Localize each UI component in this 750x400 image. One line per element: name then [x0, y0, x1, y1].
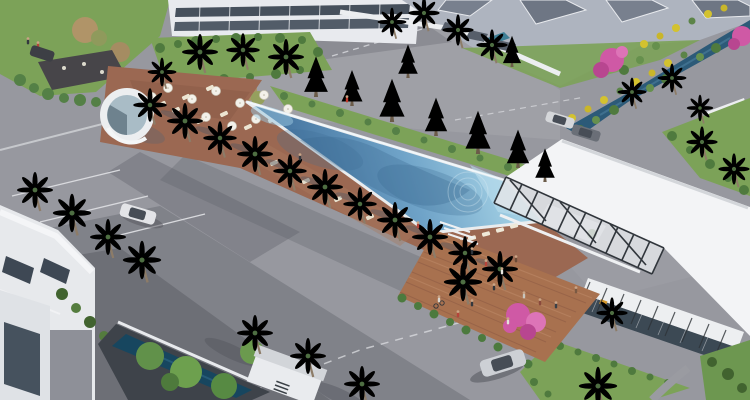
plaza-person	[515, 255, 518, 262]
glass-wall	[4, 322, 40, 396]
tree-canopy	[91, 30, 107, 46]
patio	[50, 330, 92, 400]
plaza-person	[485, 259, 488, 266]
plaza-person	[501, 267, 504, 274]
plaza-person	[555, 301, 558, 308]
plaza-person	[471, 299, 474, 306]
plaza-person	[457, 310, 460, 317]
plaza-person	[575, 286, 578, 293]
table	[100, 70, 104, 74]
deck-person	[299, 153, 302, 160]
deck-person	[417, 221, 420, 228]
pedestrian	[27, 37, 30, 44]
table	[62, 66, 66, 70]
render-canvas: Aerial 3D architectural rendering of a r…	[0, 0, 750, 400]
plaza-person	[507, 317, 510, 324]
plaza-person	[471, 247, 474, 254]
poolside-walker	[346, 95, 349, 102]
plaza-person	[539, 298, 542, 305]
plaza-person	[523, 291, 526, 298]
plaza-person	[493, 283, 496, 290]
table	[82, 62, 86, 66]
aerial-render-image: Aerial 3D architectural rendering of a r…	[0, 0, 750, 400]
